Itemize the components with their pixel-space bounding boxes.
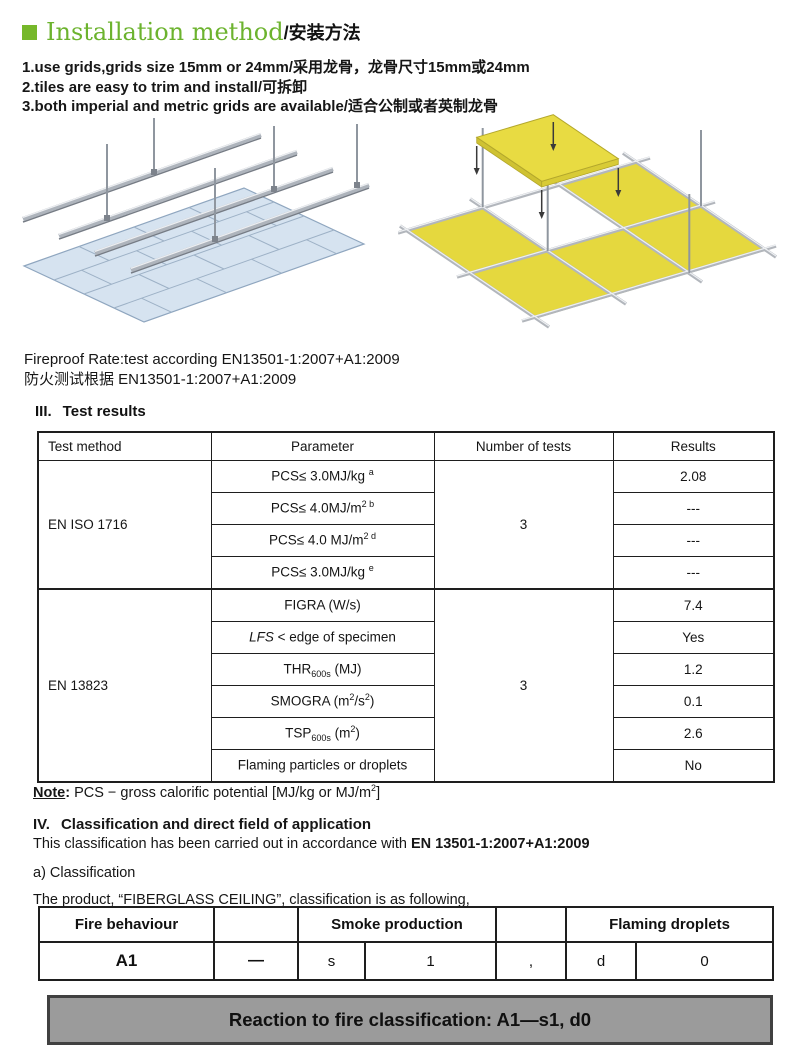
result-cell: Yes [613, 622, 774, 654]
section-3-number: III. [35, 403, 52, 420]
param-cell: THR600s (MJ) [211, 654, 434, 686]
method-cell: EN ISO 1716 [38, 461, 211, 590]
param-cell: PCS≤ 3.0MJ/kg e [211, 557, 434, 590]
section-4-title: Classification and direct field of appli… [61, 816, 371, 833]
result-cell: 2.6 [613, 718, 774, 750]
col-header-results: Results [613, 432, 774, 461]
param-cell: TSP600s (m2) [211, 718, 434, 750]
page-header: Installation method /安装方法 [22, 18, 361, 46]
standard-reference: EN 13501-1:2007+A1:2009 [411, 836, 590, 852]
header-fire-behaviour: Fire behaviour [39, 907, 214, 942]
header-spacer-1 [214, 907, 298, 942]
param-cell: FIGRA (W/s) [211, 589, 434, 622]
dash-cell: — [214, 942, 298, 980]
page-title-chinese: /安装方法 [284, 19, 361, 45]
section-4: IV.Classification and direct field of ap… [33, 816, 590, 909]
param-cell: PCS≤ 4.0MJ/m2 b [211, 493, 434, 525]
smoke-value-cell: 1 [365, 942, 496, 980]
result-cell: --- [613, 525, 774, 557]
fireproof-line-zh: 防火测试根据 EN13501-1:2007+A1:2009 [24, 370, 400, 390]
intro-line-1: 1.use grids,grids size 15mm or 24mm/采用龙骨… [22, 58, 530, 78]
result-cell: 2.08 [613, 461, 774, 493]
result-cell: 0.1 [613, 686, 774, 718]
droplet-letter-cell: d [566, 942, 636, 980]
classification-table: Fire behaviour Smoke production Flaming … [38, 906, 774, 981]
result-cell: No [613, 750, 774, 783]
document-page: Installation method /安装方法 1.use grids,gr… [0, 0, 800, 1061]
note-body: PCS − gross calorific potential [MJ/kg o… [74, 785, 371, 801]
test-results-table: Test method Parameter Number of tests Re… [37, 431, 775, 783]
result-cell: 7.4 [613, 589, 774, 622]
param-cell: PCS≤ 3.0MJ/kg a [211, 461, 434, 493]
intro-line-2: 2.tiles are easy to trim and install/可拆卸 [22, 78, 530, 98]
header-spacer-2 [496, 907, 566, 942]
param-cell: SMOGRA (m2/s2) [211, 686, 434, 718]
param-cell: LFS < edge of specimen [211, 622, 434, 654]
right-installation-diagram [398, 110, 790, 348]
param-cell: Flaming particles or droplets [211, 750, 434, 783]
page-title-english: Installation method [46, 18, 284, 46]
reaction-classification-text: Reaction to fire classification: A1—s1, … [229, 1009, 591, 1031]
header-smoke-production: Smoke production [298, 907, 496, 942]
col-header-test-method: Test method [38, 432, 211, 461]
green-square-bullet-icon [22, 25, 37, 40]
result-cell: --- [613, 557, 774, 590]
header-flaming-droplets: Flaming droplets [566, 907, 773, 942]
fireproof-line-en: Fireproof Rate:test according EN13501-1:… [24, 350, 400, 370]
section-3-heading: III.Test results [35, 403, 146, 420]
tests-cell: 3 [434, 461, 613, 590]
table-row: EN 13823 FIGRA (W/s) 3 7.4 [38, 589, 774, 622]
reaction-classification-banner: Reaction to fire classification: A1—s1, … [47, 995, 773, 1045]
intro-lines: 1.use grids,grids size 15mm or 24mm/采用龙骨… [22, 58, 530, 117]
left-installation-diagram [12, 116, 397, 346]
accordance-line: This classification has been carried out… [33, 835, 590, 853]
col-header-parameter: Parameter [211, 432, 434, 461]
note-label: Note [33, 785, 65, 801]
param-cell: PCS≤ 4.0 MJ/m2 d [211, 525, 434, 557]
result-cell: 1.2 [613, 654, 774, 686]
result-cell: --- [613, 493, 774, 525]
classification-value-row: A1 — s 1 , d 0 [39, 942, 773, 980]
comma-cell: , [496, 942, 566, 980]
method-cell: EN 13823 [38, 589, 211, 782]
droplet-value-cell: 0 [636, 942, 773, 980]
classification-header-row: Fire behaviour Smoke production Flaming … [39, 907, 773, 942]
smoke-letter-cell: s [298, 942, 365, 980]
fire-class-cell: A1 [39, 942, 214, 980]
col-header-number-of-tests: Number of tests [434, 432, 613, 461]
section-3-title: Test results [63, 403, 146, 420]
tests-cell: 3 [434, 589, 613, 782]
table-row: EN ISO 1716 PCS≤ 3.0MJ/kg a 3 2.08 [38, 461, 774, 493]
classification-sub-heading: a) Classification [33, 864, 590, 882]
note-line: Note: PCS − gross calorific potential [M… [33, 783, 380, 801]
section-4-heading: IV.Classification and direct field of ap… [33, 816, 590, 834]
fireproof-rate-text: Fireproof Rate:test according EN13501-1:… [24, 350, 400, 390]
table-header-row: Test method Parameter Number of tests Re… [38, 432, 774, 461]
section-4-number: IV. [33, 816, 50, 833]
